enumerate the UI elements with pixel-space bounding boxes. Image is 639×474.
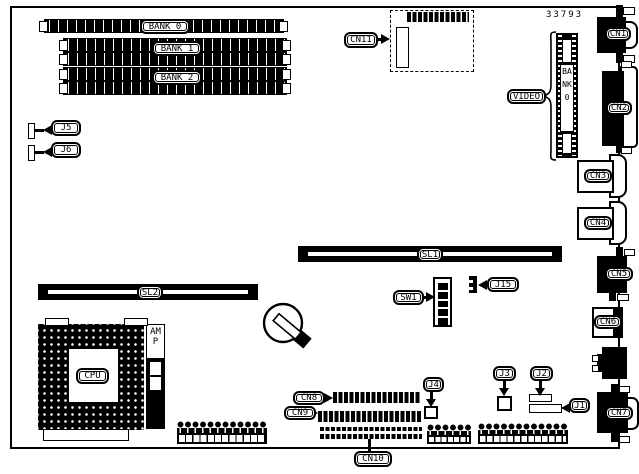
bank1-cap <box>59 54 68 65</box>
j2-label: J2 <box>530 366 553 381</box>
header-connector-pins <box>478 423 568 430</box>
mount-tab <box>624 249 635 256</box>
cn11-header <box>407 12 469 22</box>
mount-tab <box>621 61 632 68</box>
cpu-socket-lever <box>43 429 129 441</box>
audio-jack-connector <box>597 354 627 372</box>
mount-tab <box>611 433 618 442</box>
mount-tab <box>609 293 616 301</box>
j5-jumper <box>28 123 35 139</box>
j4-arrow-icon <box>426 399 436 407</box>
video-bank-key-top <box>562 39 572 63</box>
j3-label: J3 <box>493 366 516 381</box>
bank2-cap <box>59 69 68 80</box>
audio-jack-pin <box>592 355 599 362</box>
bank2-cap <box>59 83 68 94</box>
j1-label: J1 <box>569 398 590 413</box>
cn8-arrow-icon <box>324 393 333 403</box>
motherboard-diagram: 33793 BANK 0 BANK 1 BANK 2 J5 J6 CN11 BA… <box>0 0 639 474</box>
bank2-cap <box>282 69 291 80</box>
header-connector-cells <box>478 434 568 444</box>
audio-jack-pin <box>592 365 599 372</box>
cn3-label: CN3 <box>584 169 612 183</box>
amp-slot <box>150 362 161 375</box>
sl1-label: SL1 <box>417 247 443 262</box>
cpu-socket-tab <box>45 318 69 326</box>
cpu-label: CPU <box>76 368 109 384</box>
mount-tab <box>611 384 618 392</box>
sw1-label: SW1 <box>393 290 424 305</box>
j1-jumper <box>529 404 562 413</box>
bank1-cap <box>282 40 291 51</box>
cn2-label: CN2 <box>606 101 632 115</box>
cn11-socket <box>396 27 409 68</box>
power-connector-pins <box>177 421 267 428</box>
j4-jumper <box>424 406 438 419</box>
amp-label: AMP <box>148 327 163 347</box>
bank1-cap <box>282 54 291 65</box>
bank2-cap <box>282 83 291 94</box>
mount-tab <box>621 147 632 154</box>
j15-jumper <box>469 276 477 293</box>
cn6-label: CN6 <box>594 315 622 329</box>
power-connector-cells <box>177 433 267 444</box>
j3-jumper <box>497 396 512 411</box>
j6-label: J6 <box>51 142 81 158</box>
j15-label: J15 <box>487 277 519 292</box>
header-connector-pins <box>427 424 471 431</box>
part-number: 33793 <box>546 10 586 20</box>
cpu-socket-tab <box>124 318 148 326</box>
battery-icon <box>258 298 322 360</box>
j6-jumper <box>28 145 35 161</box>
cn11-arrow-icon <box>381 34 390 44</box>
cn11-label: CN11 <box>344 32 378 48</box>
j3-arrow-icon <box>499 388 509 396</box>
bank0-cap-left <box>39 21 48 32</box>
video-bank-label: BANK0 <box>560 64 574 132</box>
header-connector-cells <box>427 435 471 444</box>
cn4-label: CN4 <box>584 216 612 230</box>
bank0-label: BANK 0 <box>140 19 190 34</box>
mount-tab <box>623 7 635 15</box>
cn9-label: CN9 <box>284 406 316 420</box>
mount-tab <box>617 294 629 301</box>
sw1-arrow-icon <box>426 292 435 302</box>
bank1-cap <box>59 40 68 51</box>
bank1-label: BANK 1 <box>152 41 202 56</box>
cn8-label: CN8 <box>293 391 325 405</box>
bank0-cap-right <box>279 21 288 32</box>
j4-label: J4 <box>423 377 444 392</box>
cn8-connector <box>333 392 420 403</box>
j15-jumper-pin <box>469 287 473 290</box>
mount-tab <box>619 436 630 443</box>
video-bank-key-bottom <box>562 133 572 154</box>
bank2-label: BANK 2 <box>152 70 202 85</box>
video-label: VIDEO <box>507 89 546 104</box>
cn7-label: CN7 <box>605 406 633 420</box>
j15-arrow-icon <box>478 280 487 290</box>
cn10-connector <box>320 427 422 439</box>
j5-label: J5 <box>51 120 81 136</box>
j15-jumper-pin <box>469 280 473 283</box>
cn10-label: CN10 <box>354 451 392 467</box>
amp-slot <box>150 377 161 390</box>
sl2-label: SL2 <box>137 285 163 300</box>
j2-arrow-icon <box>535 388 545 396</box>
cn9-connector <box>318 411 422 422</box>
cn5-label: CN5 <box>605 267 633 281</box>
cn1-label: CN1 <box>605 27 631 41</box>
sw1-dip-switch <box>433 277 452 327</box>
mount-tab <box>616 247 623 256</box>
